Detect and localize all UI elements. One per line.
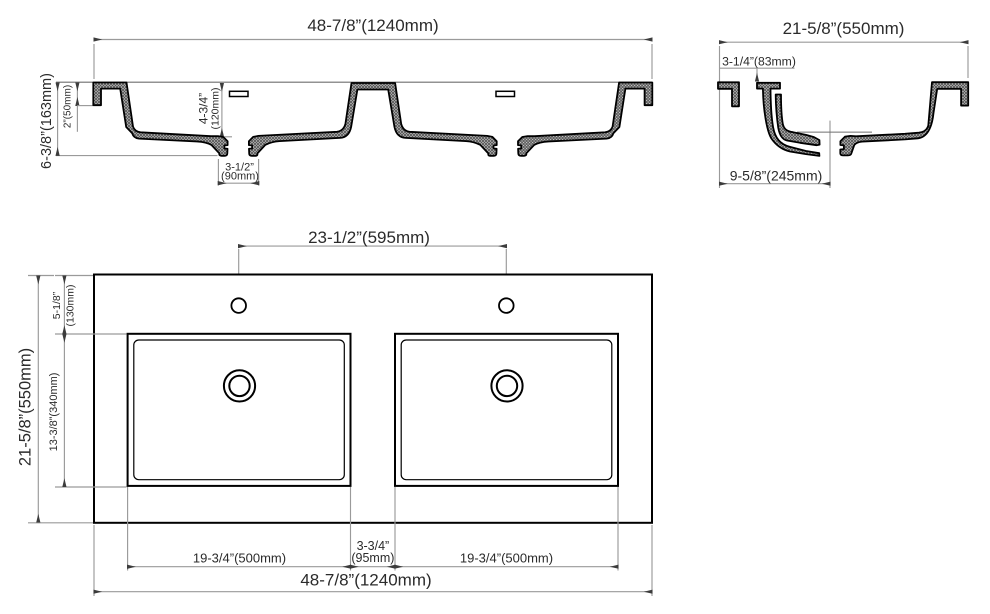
svg-text:(90mm): (90mm) <box>221 171 259 183</box>
svg-text:13-3/8”(340mm): 13-3/8”(340mm) <box>48 373 60 452</box>
svg-text:23-1/2”(595mm): 23-1/2”(595mm) <box>308 228 430 247</box>
svg-text:48-7/8”(1240mm): 48-7/8”(1240mm) <box>307 16 438 35</box>
svg-text:19-3/4”(500mm): 19-3/4”(500mm) <box>193 550 286 565</box>
svg-text:2”(50mm): 2”(50mm) <box>63 85 74 128</box>
svg-text:19-3/4”(500mm): 19-3/4”(500mm) <box>460 550 553 565</box>
svg-text:21-5/8”(550mm): 21-5/8”(550mm) <box>783 19 905 38</box>
svg-text:(130mm): (130mm) <box>65 284 77 326</box>
svg-text:6-3/8”(163mm): 6-3/8”(163mm) <box>39 73 55 169</box>
svg-text:(120mm): (120mm) <box>210 87 222 129</box>
svg-text:3-1/4”(83mm): 3-1/4”(83mm) <box>722 55 796 69</box>
svg-text:5-1/8”: 5-1/8” <box>51 291 63 319</box>
svg-text:(95mm): (95mm) <box>351 551 394 565</box>
svg-text:48-7/8”(1240mm): 48-7/8”(1240mm) <box>300 571 431 590</box>
svg-text:21-5/8”(550mm): 21-5/8”(550mm) <box>17 348 35 466</box>
svg-text:9-5/8”(245mm): 9-5/8”(245mm) <box>730 168 823 184</box>
svg-text:4-3/4”: 4-3/4” <box>197 93 211 124</box>
